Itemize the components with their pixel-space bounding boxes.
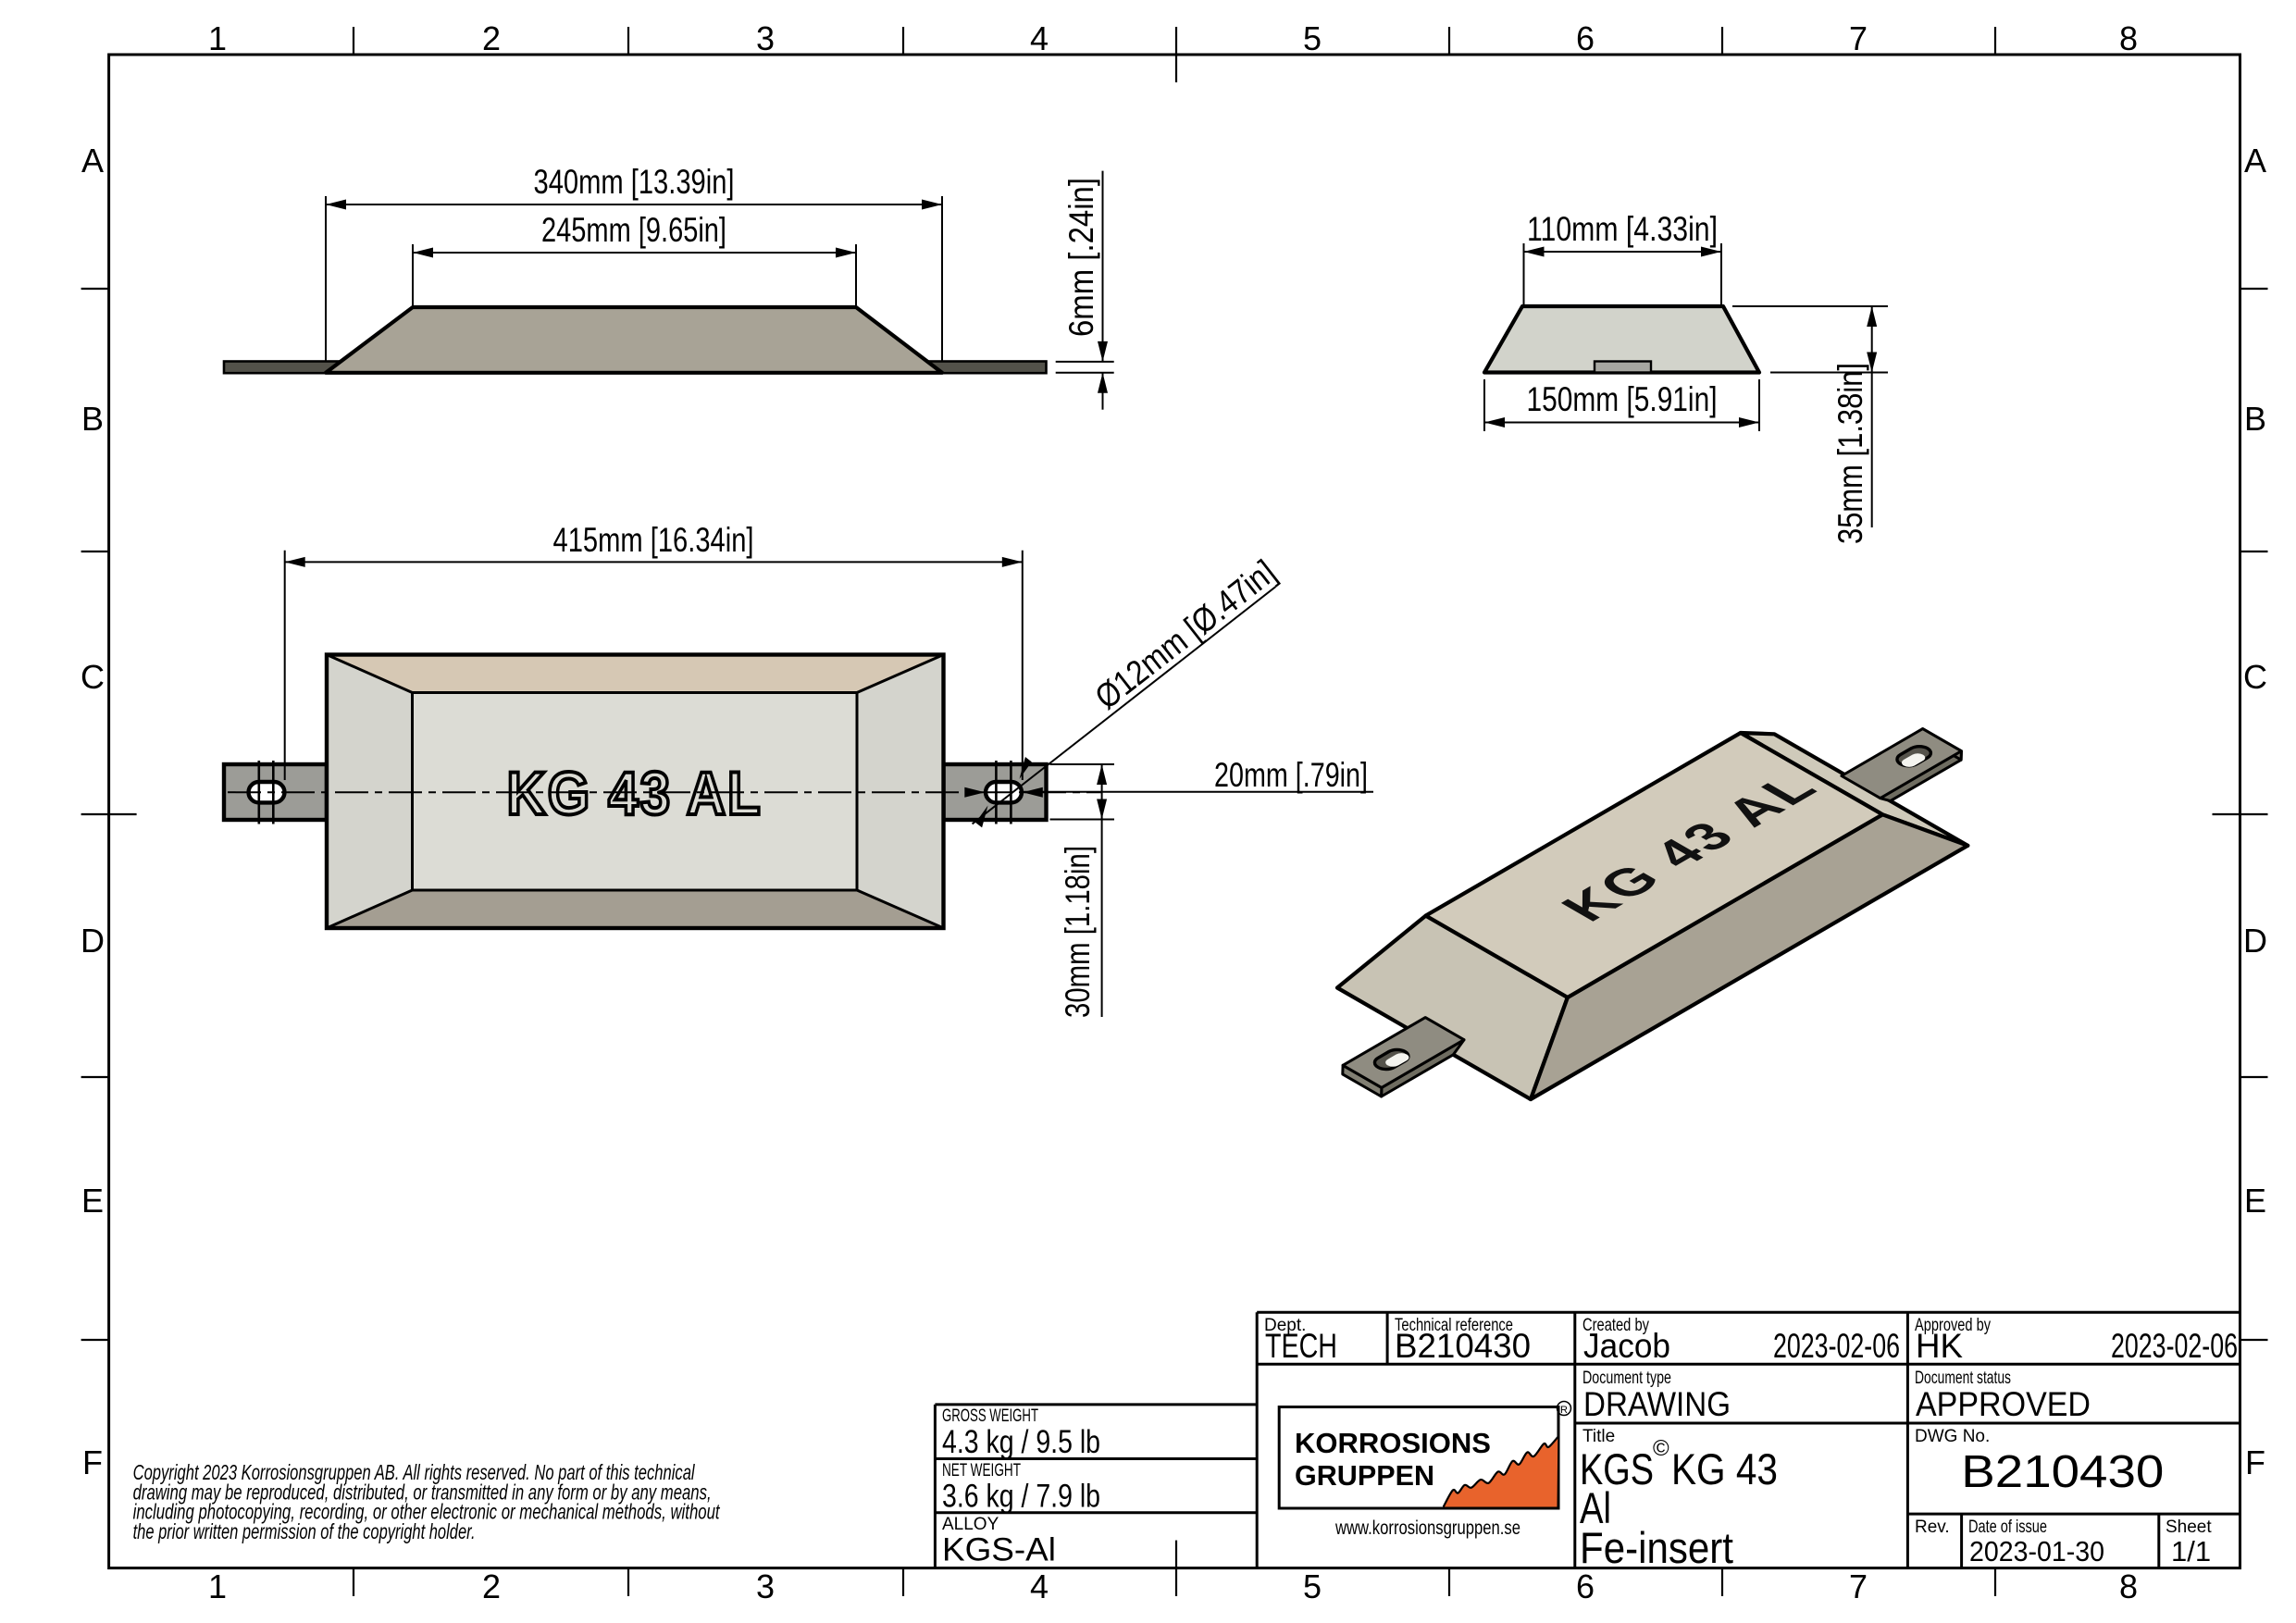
- svg-text:R: R: [1560, 1405, 1568, 1416]
- svg-text:B210430: B210430: [1395, 1327, 1531, 1365]
- svg-text:110mm [4.33in]: 110mm [4.33in]: [1527, 210, 1718, 248]
- svg-text:Sheet: Sheet: [2166, 1518, 2212, 1537]
- svg-text:35mm [1.38in]: 35mm [1.38in]: [1831, 363, 1869, 544]
- svg-text:2023-02-06: 2023-02-06: [1773, 1327, 1900, 1365]
- svg-text:2: 2: [482, 1567, 501, 1605]
- svg-text:GRUPPEN: GRUPPEN: [1295, 1459, 1434, 1492]
- svg-text:Jacob: Jacob: [1583, 1327, 1670, 1365]
- svg-text:150mm [5.91in]: 150mm [5.91in]: [1527, 380, 1718, 418]
- svg-text:20mm [.79in]: 20mm [.79in]: [1214, 756, 1368, 794]
- svg-text:HK: HK: [1916, 1327, 1963, 1365]
- svg-text:4: 4: [1030, 1567, 1049, 1605]
- svg-text:3.6 kg / 7.9 lb: 3.6 kg / 7.9 lb: [942, 1479, 1100, 1515]
- svg-text:Rev.: Rev.: [1915, 1518, 1950, 1537]
- svg-text:Date of issue: Date of issue: [1968, 1518, 2047, 1537]
- svg-text:6: 6: [1576, 1567, 1595, 1605]
- svg-text:A: A: [2244, 142, 2266, 180]
- svg-text:the prior written permission o: the prior written permission of the copy…: [133, 1519, 476, 1543]
- svg-text:6: 6: [1576, 19, 1595, 57]
- svg-text:1: 1: [208, 19, 227, 57]
- svg-text:©: ©: [1653, 1436, 1669, 1461]
- svg-text:KORROSIONS: KORROSIONS: [1295, 1427, 1491, 1459]
- svg-text:B: B: [2244, 400, 2266, 438]
- svg-text:B: B: [81, 400, 104, 438]
- svg-text:Title: Title: [1582, 1427, 1615, 1446]
- svg-text:D: D: [81, 922, 105, 960]
- svg-text:B210430: B210430: [1961, 1447, 2164, 1497]
- svg-text:8: 8: [2119, 19, 2138, 57]
- svg-text:GROSS WEIGHT: GROSS WEIGHT: [942, 1406, 1038, 1426]
- svg-text:3: 3: [756, 1567, 775, 1605]
- svg-text:F: F: [2245, 1443, 2265, 1481]
- svg-text:DRAWING: DRAWING: [1583, 1385, 1731, 1423]
- svg-text:1/1: 1/1: [2171, 1535, 2211, 1567]
- svg-text:A: A: [81, 142, 104, 180]
- svg-text:APPROVED: APPROVED: [1916, 1385, 2091, 1423]
- svg-text:8: 8: [2119, 1567, 2138, 1605]
- svg-text:C: C: [2243, 658, 2267, 696]
- svg-text:D: D: [2243, 922, 2267, 960]
- svg-text:4: 4: [1030, 19, 1049, 57]
- svg-text:1: 1: [208, 1567, 227, 1605]
- svg-text:KGS-Al: KGS-Al: [942, 1532, 1056, 1568]
- svg-text:245mm [9.65in]: 245mm [9.65in]: [541, 211, 726, 249]
- svg-text:7: 7: [1849, 1567, 1868, 1605]
- svg-text:30mm [1.18in]: 30mm [1.18in]: [1059, 846, 1097, 1018]
- svg-text:5: 5: [1303, 19, 1322, 57]
- svg-text:2: 2: [482, 19, 501, 57]
- svg-text:F: F: [82, 1443, 103, 1481]
- svg-text:3: 3: [756, 19, 775, 57]
- svg-text:5: 5: [1303, 1567, 1322, 1605]
- svg-text:DWG No.: DWG No.: [1915, 1427, 1990, 1446]
- svg-text:2023-01-30: 2023-01-30: [1969, 1535, 2104, 1567]
- svg-text:KG 43: KG 43: [1671, 1444, 1778, 1493]
- svg-text:Fe-insert: Fe-insert: [1580, 1523, 1733, 1572]
- svg-text:340mm [13.39in]: 340mm [13.39in]: [534, 163, 735, 201]
- svg-text:www.korrosionsgruppen.se: www.korrosionsgruppen.se: [1334, 1518, 1520, 1539]
- svg-text:2023-02-06: 2023-02-06: [2111, 1327, 2238, 1365]
- svg-text:7: 7: [1849, 19, 1868, 57]
- svg-text:TECH: TECH: [1265, 1327, 1337, 1365]
- svg-text:E: E: [81, 1182, 104, 1220]
- svg-text:6mm [.24in]: 6mm [.24in]: [1062, 178, 1100, 337]
- svg-text:415mm [16.34in]: 415mm [16.34in]: [553, 521, 754, 559]
- svg-text:C: C: [81, 658, 105, 696]
- svg-text:E: E: [2244, 1182, 2266, 1220]
- svg-text:4.3 kg / 9.5 lb: 4.3 kg / 9.5 lb: [942, 1424, 1100, 1460]
